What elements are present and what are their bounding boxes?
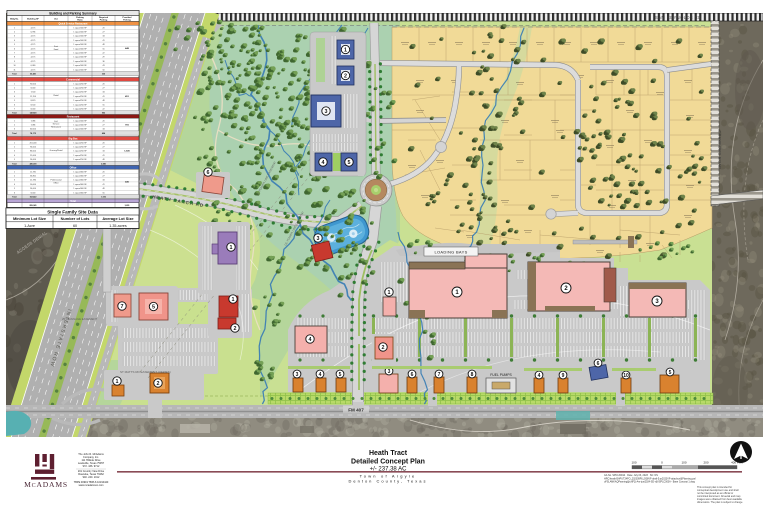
svg-text:6: 6 xyxy=(411,372,414,378)
svg-text:27: 27 xyxy=(102,32,104,34)
svg-text:60,000: 60,000 xyxy=(30,129,36,131)
svg-text:Detailed Concept Plan: Detailed Concept Plan xyxy=(351,459,425,466)
svg-text:Quick Service Restaurant: Quick Service Restaurant xyxy=(59,22,88,25)
svg-text:Building and Parking Summary: Building and Parking Summary xyxy=(49,12,97,16)
svg-text:2: 2 xyxy=(344,73,347,79)
svg-text:24,000: 24,000 xyxy=(30,159,36,161)
svg-text:200: 200 xyxy=(703,461,708,465)
svg-text:8,500: 8,500 xyxy=(31,104,36,106)
svg-text:1 space/250 SF: 1 space/250 SF xyxy=(73,100,87,102)
svg-text:1,530: 1,530 xyxy=(124,151,130,153)
svg-text:86,000: 86,000 xyxy=(30,151,36,153)
svg-text:5: 5 xyxy=(339,372,342,378)
svg-text:7,086: 7,086 xyxy=(31,120,36,122)
svg-text:2: 2 xyxy=(382,345,385,351)
svg-text:Restaurant: Restaurant xyxy=(51,125,61,128)
svg-text:4: 4 xyxy=(319,372,322,378)
svg-text:4,175: 4,175 xyxy=(31,69,36,71)
svg-text:5: 5 xyxy=(14,188,15,190)
svg-text:Retail: Retail xyxy=(53,94,59,97)
svg-text:4,175: 4,175 xyxy=(31,48,36,50)
svg-text:Fast: Fast xyxy=(54,45,58,48)
svg-text:27: 27 xyxy=(102,88,104,90)
svg-text:Total: Total xyxy=(12,162,17,165)
svg-text:1: 1 xyxy=(344,47,347,53)
svg-text:1 space/100 SF: 1 space/100 SF xyxy=(73,65,87,67)
svg-text:41: 41 xyxy=(102,96,104,98)
svg-text:3,655: 3,655 xyxy=(125,205,130,207)
svg-text:8: 8 xyxy=(471,372,474,378)
svg-text:Commercial: Commercial xyxy=(66,78,80,81)
svg-text:1: 1 xyxy=(116,379,119,385)
svg-text:1 space/100 SF: 1 space/100 SF xyxy=(73,61,87,63)
svg-text:1 space/250 SF: 1 space/250 SF xyxy=(73,109,87,111)
svg-text:100: 100 xyxy=(631,461,636,465)
svg-text:1 space/250 SF: 1 space/250 SF xyxy=(73,155,87,157)
svg-text:48: 48 xyxy=(102,44,104,46)
svg-text:11: 11 xyxy=(14,69,16,71)
svg-text:20: 20 xyxy=(102,171,104,173)
svg-text:8: 8 xyxy=(14,57,15,59)
svg-text:22: 22 xyxy=(102,109,104,111)
svg-text:4,175: 4,175 xyxy=(31,36,36,38)
svg-text:7,500: 7,500 xyxy=(31,92,36,94)
svg-text:2: 2 xyxy=(14,88,15,90)
svg-text:3: 3 xyxy=(14,129,15,131)
svg-text:Big Box: Big Box xyxy=(68,137,78,140)
svg-text:4: 4 xyxy=(538,373,541,379)
svg-text:6: 6 xyxy=(597,361,600,367)
svg-text:4: 4 xyxy=(14,184,15,186)
svg-text:ST MATTS RD EASEMENT (VARIES): ST MATTS RD EASEMENT (VARIES) xyxy=(120,370,171,374)
svg-text:4,175: 4,175 xyxy=(31,40,36,42)
svg-text:34: 34 xyxy=(102,129,104,131)
svg-text:41: 41 xyxy=(102,40,104,42)
svg-text:21,000: 21,000 xyxy=(30,155,36,157)
svg-text:1 space/300 SF: 1 space/300 SF xyxy=(73,192,87,194)
svg-text:Average Lot Size: Average Lot Size xyxy=(102,216,134,221)
svg-text:34: 34 xyxy=(102,180,104,182)
svg-text:3: 3 xyxy=(325,109,328,115)
svg-text:FUEL PUMPS: FUEL PUMPS xyxy=(490,373,512,377)
svg-text:1 space/250 SF: 1 space/250 SF xyxy=(73,104,87,106)
svg-text:21,780: 21,780 xyxy=(30,180,36,182)
svg-text:5: 5 xyxy=(348,160,351,166)
svg-text:43: 43 xyxy=(102,65,104,67)
svg-text:Bldg No.: Bldg No. xyxy=(10,19,19,21)
svg-text:8,000: 8,000 xyxy=(31,109,36,111)
svg-text:1: 1 xyxy=(14,83,15,85)
svg-text:2,840: 2,840 xyxy=(101,162,106,165)
svg-text:Denton County, Texas: Denton County, Texas xyxy=(349,479,428,484)
svg-text:48: 48 xyxy=(102,159,104,161)
svg-text:859,345: 859,345 xyxy=(30,204,37,207)
svg-text:1 space/250 SF: 1 space/250 SF xyxy=(73,142,87,144)
svg-text:74,172: 74,172 xyxy=(30,132,36,135)
svg-text:Restaurant: Restaurant xyxy=(67,115,80,118)
svg-text:20: 20 xyxy=(102,27,104,29)
svg-text:Total: Total xyxy=(12,196,17,199)
svg-text:Grocery/Retail: Grocery/Retail xyxy=(50,149,63,152)
svg-text:3: 3 xyxy=(14,151,15,153)
svg-text:4: 4 xyxy=(14,155,15,157)
svg-text:1 space/300 SF: 1 space/300 SF xyxy=(73,180,87,182)
svg-text:2: 2 xyxy=(157,381,160,387)
svg-text:1 space/250 SF: 1 space/250 SF xyxy=(73,83,87,85)
svg-text:4,175: 4,175 xyxy=(31,27,36,29)
svg-text:6,080: 6,080 xyxy=(31,65,36,67)
svg-text:60: 60 xyxy=(73,224,77,228)
svg-text:SAM REYNOLDS RD: SAM REYNOLDS RD xyxy=(655,15,702,20)
svg-text:4,175: 4,175 xyxy=(31,44,36,46)
svg-text:24,000: 24,000 xyxy=(30,188,36,190)
svg-text:8,670: 8,670 xyxy=(31,100,36,102)
svg-text:50: 50 xyxy=(102,69,104,71)
svg-text:20: 20 xyxy=(102,120,104,122)
svg-text:1 space/250 SF: 1 space/250 SF xyxy=(73,151,87,153)
svg-text:8,000: 8,000 xyxy=(31,88,36,90)
svg-text:4: 4 xyxy=(14,96,15,98)
svg-text:20: 20 xyxy=(102,83,104,85)
svg-text:2: 2 xyxy=(14,147,15,149)
svg-text:LOADING BAYS: LOADING BAYS xyxy=(434,250,467,255)
svg-text:1 space/100 SF: 1 space/100 SF xyxy=(73,129,87,131)
svg-text:FM 407: FM 407 xyxy=(348,408,364,413)
svg-text:1 space/100 SF: 1 space/100 SF xyxy=(73,53,87,55)
svg-text:8,000: 8,000 xyxy=(31,192,36,194)
svg-text:1: 1 xyxy=(14,120,15,122)
svg-text:Total: Total xyxy=(12,132,17,135)
svg-text:6: 6 xyxy=(14,48,15,50)
svg-text:36,861: 36,861 xyxy=(30,176,36,178)
svg-text:1 space/100 SF: 1 space/100 SF xyxy=(73,120,87,122)
svg-text:+/- 237.38 AC: +/- 237.38 AC xyxy=(370,467,408,473)
svg-text:94,000: 94,000 xyxy=(30,147,36,149)
svg-text:7,086: 7,086 xyxy=(31,125,36,127)
svg-text:940. 240. 1012: 940. 240. 1012 xyxy=(83,476,100,479)
svg-text:Professional: Professional xyxy=(50,180,62,182)
svg-text:1 space/100 SF: 1 space/100 SF xyxy=(73,36,87,38)
svg-text:5: 5 xyxy=(14,100,15,102)
svg-text:Total: Total xyxy=(70,200,76,203)
svg-text:Food: Food xyxy=(54,49,59,51)
svg-text:6: 6 xyxy=(14,104,15,106)
svg-text:27: 27 xyxy=(102,176,104,178)
svg-text:336: 336 xyxy=(102,74,105,76)
svg-text:3: 3 xyxy=(14,92,15,94)
svg-text:5: 5 xyxy=(152,304,155,310)
svg-text:6,786: 6,786 xyxy=(31,32,36,34)
svg-text:Minimum Lot Size: Minimum Lot Size xyxy=(13,216,47,221)
svg-text:MCADAMS: MCADAMS xyxy=(24,480,68,489)
svg-text:1 space/250 SF: 1 space/250 SF xyxy=(73,147,87,149)
svg-text:9: 9 xyxy=(562,373,565,379)
svg-text:uFSLAMKAQPanning@cNFQ-Am-just2: uFSLAMKAQPanning@cNFQ-Am-just2024-SD-r&V… xyxy=(604,481,695,484)
svg-text:5: 5 xyxy=(14,159,15,161)
svg-text:2: 2 xyxy=(14,32,15,34)
svg-text:11,781: 11,781 xyxy=(30,171,36,173)
svg-text:1-Acre: 1-Acre xyxy=(24,224,35,228)
svg-text:6: 6 xyxy=(14,192,15,194)
svg-text:1: 1 xyxy=(14,171,15,173)
svg-text:2: 2 xyxy=(234,326,237,332)
svg-text:5: 5 xyxy=(14,44,15,46)
svg-text:36: 36 xyxy=(102,61,104,63)
svg-text:10: 10 xyxy=(623,373,629,379)
svg-text:1.35-acres: 1.35-acres xyxy=(109,224,127,228)
svg-text:27: 27 xyxy=(102,147,104,149)
svg-text:50,000: 50,000 xyxy=(30,184,36,186)
svg-text:9: 9 xyxy=(14,61,15,63)
svg-text:4: 4 xyxy=(322,160,325,166)
svg-text:1: 1 xyxy=(388,290,391,296)
svg-text:Ratio: Ratio xyxy=(77,19,83,22)
svg-text:41: 41 xyxy=(102,184,104,186)
svg-text:20: 20 xyxy=(102,142,104,144)
svg-text:48: 48 xyxy=(102,188,104,190)
svg-text:Single Family Site Data: Single Family Site Data xyxy=(47,210,98,215)
svg-text:1 space/300 SF: 1 space/300 SF xyxy=(73,176,87,178)
svg-text:7: 7 xyxy=(14,53,15,55)
svg-text:Total: Total xyxy=(12,112,17,115)
svg-text:1 space/100 SF: 1 space/100 SF xyxy=(73,40,87,42)
svg-text:3: 3 xyxy=(388,369,391,375)
svg-text:1: 1 xyxy=(14,27,15,29)
svg-text:Total: Total xyxy=(12,73,17,76)
svg-text:7: 7 xyxy=(438,372,441,378)
svg-text:1 space/250 SF: 1 space/250 SF xyxy=(73,96,87,98)
svg-text:1: 1 xyxy=(230,245,233,251)
svg-text:4,175: 4,175 xyxy=(31,53,36,55)
svg-text:50,441: 50,441 xyxy=(30,73,36,76)
svg-text:1 space/100 SF: 1 space/100 SF xyxy=(73,32,87,34)
svg-text:Number of Lots: Number of Lots xyxy=(61,216,90,221)
svg-text:90,000: 90,000 xyxy=(30,83,36,85)
svg-text:48: 48 xyxy=(102,100,104,102)
svg-text:7: 7 xyxy=(14,109,15,111)
svg-text:34: 34 xyxy=(102,151,104,153)
svg-text:100: 100 xyxy=(681,461,686,465)
svg-text:972. 436. 9712: 972. 436. 9712 xyxy=(83,465,100,468)
svg-text:1 space/300 SF: 1 space/300 SF xyxy=(73,184,87,186)
svg-text:29: 29 xyxy=(102,57,104,59)
svg-text:1 space/250 SF: 1 space/250 SF xyxy=(73,92,87,94)
svg-text:4: 4 xyxy=(14,40,15,42)
svg-text:10: 10 xyxy=(13,65,15,67)
svg-text:27: 27 xyxy=(102,125,104,127)
svg-text:6: 6 xyxy=(207,170,210,176)
svg-text:dimensions. The plan is subjec: dimensions. The plan is subject to chang… xyxy=(697,501,743,504)
svg-text:34: 34 xyxy=(102,36,104,38)
svg-text:3: 3 xyxy=(317,236,320,242)
svg-text:www.mcadamsco.com: www.mcadamsco.com xyxy=(79,484,104,487)
svg-text:3: 3 xyxy=(14,180,15,182)
svg-text:1,016: 1,016 xyxy=(101,197,106,199)
svg-text:152,422: 152,422 xyxy=(30,196,37,199)
svg-text:3: 3 xyxy=(14,36,15,38)
svg-text:1 space/100 SF: 1 space/100 SF xyxy=(73,69,87,71)
svg-text:34: 34 xyxy=(102,92,104,94)
svg-text:Building SF: Building SF xyxy=(27,19,39,21)
svg-text:1 space/300 SF: 1 space/300 SF xyxy=(73,188,87,190)
svg-text:3: 3 xyxy=(296,372,299,378)
svg-text:1 space/100 SF: 1 space/100 SF xyxy=(73,125,87,127)
svg-text:1 space/250 SF: 1 space/250 SF xyxy=(73,159,87,161)
svg-text:Parking: Parking xyxy=(123,19,131,22)
svg-text:1 space/100 SF: 1 space/100 SF xyxy=(73,44,87,46)
svg-text:7: 7 xyxy=(121,304,124,310)
svg-text:55: 55 xyxy=(102,104,104,106)
svg-text:4,175: 4,175 xyxy=(31,57,36,59)
svg-text:1 space/300 SF: 1 space/300 SF xyxy=(73,171,87,173)
svg-text:Parking: Parking xyxy=(100,19,108,22)
svg-text:4,175: 4,175 xyxy=(31,61,36,63)
svg-text:1: 1 xyxy=(14,142,15,144)
svg-text:41: 41 xyxy=(102,155,104,157)
svg-text:22: 22 xyxy=(102,53,104,55)
svg-text:1 space/100 SF: 1 space/100 SF xyxy=(73,57,87,59)
svg-text:1 space/100 SF: 1 space/100 SF xyxy=(73,48,87,50)
svg-text:2: 2 xyxy=(14,176,15,178)
svg-text:1 space/100 SF: 1 space/100 SF xyxy=(73,27,87,29)
svg-text:Full: Full xyxy=(54,121,58,123)
svg-text:4: 4 xyxy=(309,337,312,343)
svg-text:25' DRAINAGE EASEMENT: 25' DRAINAGE EASEMENT xyxy=(62,317,97,321)
svg-text:12,150: 12,150 xyxy=(30,96,36,98)
svg-text:201,000: 201,000 xyxy=(30,142,37,144)
svg-text:55: 55 xyxy=(102,192,104,194)
svg-text:1 space/250 SF: 1 space/250 SF xyxy=(73,88,87,90)
svg-text:55: 55 xyxy=(102,48,104,50)
svg-text:142,820: 142,820 xyxy=(30,112,37,115)
svg-text:Office: Office xyxy=(70,166,77,169)
svg-text:Office: Office xyxy=(53,182,59,184)
svg-text:Service: Service xyxy=(53,124,61,126)
svg-text:1: 1 xyxy=(232,297,235,303)
svg-text:2: 2 xyxy=(14,125,15,127)
svg-text:426,000: 426,000 xyxy=(30,162,37,165)
svg-text:Heath Tract: Heath Tract xyxy=(369,450,408,457)
svg-text:CRAWFORD ROAD: CRAWFORD ROAD xyxy=(718,131,722,170)
svg-text:5: 5 xyxy=(669,370,672,376)
